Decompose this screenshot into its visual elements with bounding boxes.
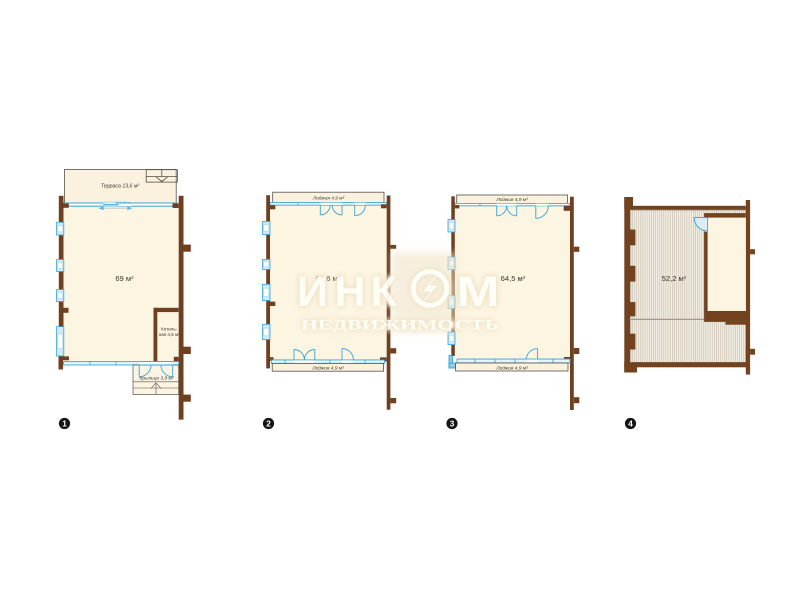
svg-text:2: 2 [266,420,271,429]
svg-text:1: 1 [62,420,67,429]
svg-text:Лоджия 4,9 м²: Лоджия 4,9 м² [495,365,528,371]
svg-text:4: 4 [628,420,633,429]
svg-text:52,2 м2: 52,2 м2 [662,274,687,283]
svg-text:Н: Н [335,268,366,316]
svg-text:Крыльцо 3,9 м²: Крыльцо 3,9 м² [140,375,174,381]
svg-text:ная 4,5 м²: ная 4,5 м² [159,332,181,337]
svg-text:К: К [371,268,398,316]
svg-text:Котель-: Котель- [161,327,178,332]
svg-text:И: И [297,268,328,316]
svg-text:64,5 м2: 64,5 м2 [501,274,526,283]
svg-text:НЕДВИЖИМОСТЬ: НЕДВИЖИМОСТЬ [301,318,499,334]
svg-text:М: М [457,268,500,316]
svg-text:Терраса 13,6 м²: Терраса 13,6 м² [101,184,140,190]
svg-text:Лоджия 4,9 м²: Лоджия 4,9 м² [312,196,345,202]
svg-text:Лоджия 4,9 м²: Лоджия 4,9 м² [495,197,528,203]
svg-text:Лоджия 4,9 м²: Лоджия 4,9 м² [311,366,344,372]
svg-text:3: 3 [450,420,455,429]
